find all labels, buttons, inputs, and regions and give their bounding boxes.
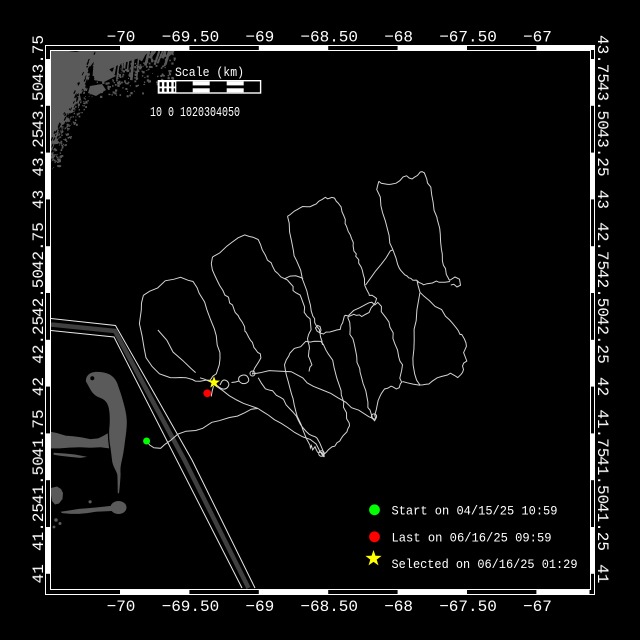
svg-text:41.75: 41.75 <box>30 409 48 457</box>
svg-text:−69.50: −69.50 <box>162 29 220 47</box>
svg-text:−70: −70 <box>107 598 136 616</box>
svg-text:42.50: 42.50 <box>593 269 611 317</box>
svg-text:41.50: 41.50 <box>593 456 611 504</box>
svg-text:41.25: 41.25 <box>30 503 48 551</box>
svg-text:41.50: 41.50 <box>30 456 48 504</box>
svg-text:43.75: 43.75 <box>593 35 611 83</box>
svg-text:42.75: 42.75 <box>593 222 611 270</box>
svg-text:−69: −69 <box>245 29 274 47</box>
svg-text:41: 41 <box>593 564 611 583</box>
svg-text:42: 42 <box>30 377 48 396</box>
svg-text:42: 42 <box>593 377 611 396</box>
svg-text:43.50: 43.50 <box>593 82 611 130</box>
svg-text:41.25: 41.25 <box>593 503 611 551</box>
svg-text:Scale (km): Scale (km) <box>175 66 244 80</box>
svg-text:−68.50: −68.50 <box>300 29 358 47</box>
svg-text:42.25: 42.25 <box>593 316 611 364</box>
svg-text:41.75: 41.75 <box>593 409 611 457</box>
svg-text:Last on 06/16/25 09:59: Last on 06/16/25 09:59 <box>392 532 552 546</box>
svg-text:−69.50: −69.50 <box>162 598 220 616</box>
svg-text:−68.50: −68.50 <box>300 598 358 616</box>
svg-text:43: 43 <box>593 190 611 209</box>
svg-text:−67: −67 <box>523 29 552 47</box>
svg-text:Selected on 06/16/25 01:29: Selected on 06/16/25 01:29 <box>392 558 578 572</box>
svg-text:Start on 04/15/25 10:59: Start on 04/15/25 10:59 <box>392 505 558 519</box>
svg-text:−69: −69 <box>245 598 274 616</box>
svg-text:−67.50: −67.50 <box>439 29 497 47</box>
svg-text:−70: −70 <box>107 29 136 47</box>
svg-text:43.25: 43.25 <box>30 129 48 177</box>
svg-text:43.75: 43.75 <box>30 35 48 83</box>
svg-text:43.25: 43.25 <box>593 129 611 177</box>
svg-text:42.50: 42.50 <box>30 269 48 317</box>
svg-text:42.25: 42.25 <box>30 316 48 364</box>
svg-text:42.75: 42.75 <box>30 222 48 270</box>
svg-text:43.50: 43.50 <box>30 82 48 130</box>
svg-text:−67: −67 <box>523 598 552 616</box>
svg-text:10 0 1020304050: 10 0 1020304050 <box>150 105 240 121</box>
svg-text:−68: −68 <box>384 29 413 47</box>
svg-text:43: 43 <box>30 190 48 209</box>
svg-text:−68: −68 <box>384 598 413 616</box>
svg-text:41: 41 <box>30 564 48 583</box>
svg-text:−67.50: −67.50 <box>439 598 497 616</box>
